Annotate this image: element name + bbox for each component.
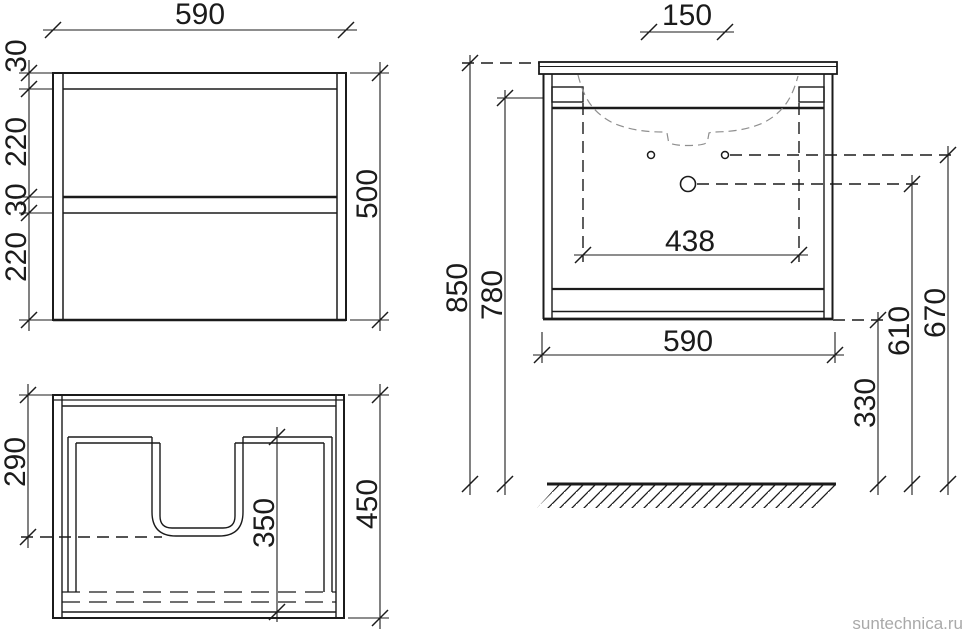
dim-plan-drawer-depth: 350: [248, 427, 285, 622]
dim-top-rail-label: 30: [0, 39, 33, 72]
dim-cabinet-top-height: 780: [476, 90, 513, 495]
dim-supply-height: 670: [919, 146, 956, 495]
front-view: 590 500 30 220 30 220: [0, 0, 389, 331]
dim-install-width-label: 590: [663, 325, 713, 358]
dim-bottom-clearance-label: 330: [849, 378, 882, 428]
dim-bracket-spacing-label: 438: [665, 225, 715, 258]
countertop: [539, 62, 837, 74]
drain-hole: [681, 177, 696, 192]
dim-bracket-spacing: 438: [574, 225, 808, 263]
dim-front-width-label: 590: [175, 0, 225, 31]
dim-middle-gap-label: 30: [0, 183, 33, 216]
dim-front-height: 500: [350, 62, 389, 331]
dim-plan-cutout: 290: [0, 384, 53, 548]
dim-lower-drawer-label: 220: [0, 232, 33, 282]
dim-drain-height-label: 610: [883, 306, 916, 356]
bracket-left: [552, 87, 583, 102]
dim-plan-cutout-label: 290: [0, 437, 32, 487]
hidden-extension-lines: [462, 63, 956, 320]
dim-bottom-clearance: 330: [849, 312, 886, 495]
drawing-svg: 590 500 30 220 30 220: [0, 0, 970, 638]
dim-drain-height: 610: [883, 175, 920, 495]
dim-cabinet-top-height-label: 780: [476, 270, 509, 320]
dim-front-left-chain: 30 220 30 220: [0, 39, 53, 331]
faucet-hole-right: [722, 152, 729, 159]
installation-view: 150 438 590 850 780 670: [441, 0, 956, 508]
watermark: suntechnica.ru: [852, 614, 963, 633]
washbasin-hidden-outline: [578, 75, 798, 146]
floor: [537, 484, 836, 508]
dim-total-height: 850: [441, 55, 478, 495]
dim-plan-drawer-depth-label: 350: [248, 498, 281, 548]
dim-supply-height-label: 670: [919, 288, 952, 338]
dim-plan-depth-label: 450: [351, 479, 384, 529]
dim-front-width: 590: [43, 0, 357, 38]
dim-upper-drawer-label: 220: [0, 117, 33, 167]
plan-view: 290 350 450: [0, 384, 389, 629]
dim-faucet-spacing-label: 150: [662, 0, 712, 32]
plan-view-outline: [53, 395, 344, 618]
bracket-right: [799, 87, 824, 102]
faucet-hole-left: [648, 152, 655, 159]
siphon-cutout-inner: [160, 443, 235, 528]
plan-drawer-outline: [21, 437, 336, 602]
floor-hatch: [537, 485, 836, 508]
technical-drawing: 590 500 30 220 30 220: [0, 0, 970, 638]
siphon-cutout-outer: [152, 437, 243, 536]
dim-front-height-label: 500: [351, 169, 384, 219]
dim-install-width: 590: [533, 325, 844, 363]
front-view-outline: [53, 73, 346, 320]
dim-total-height-label: 850: [441, 263, 474, 313]
dim-plan-depth: 450: [348, 384, 389, 629]
dim-faucet-spacing: 150: [640, 0, 734, 40]
cabinet-body: [543, 74, 833, 319]
